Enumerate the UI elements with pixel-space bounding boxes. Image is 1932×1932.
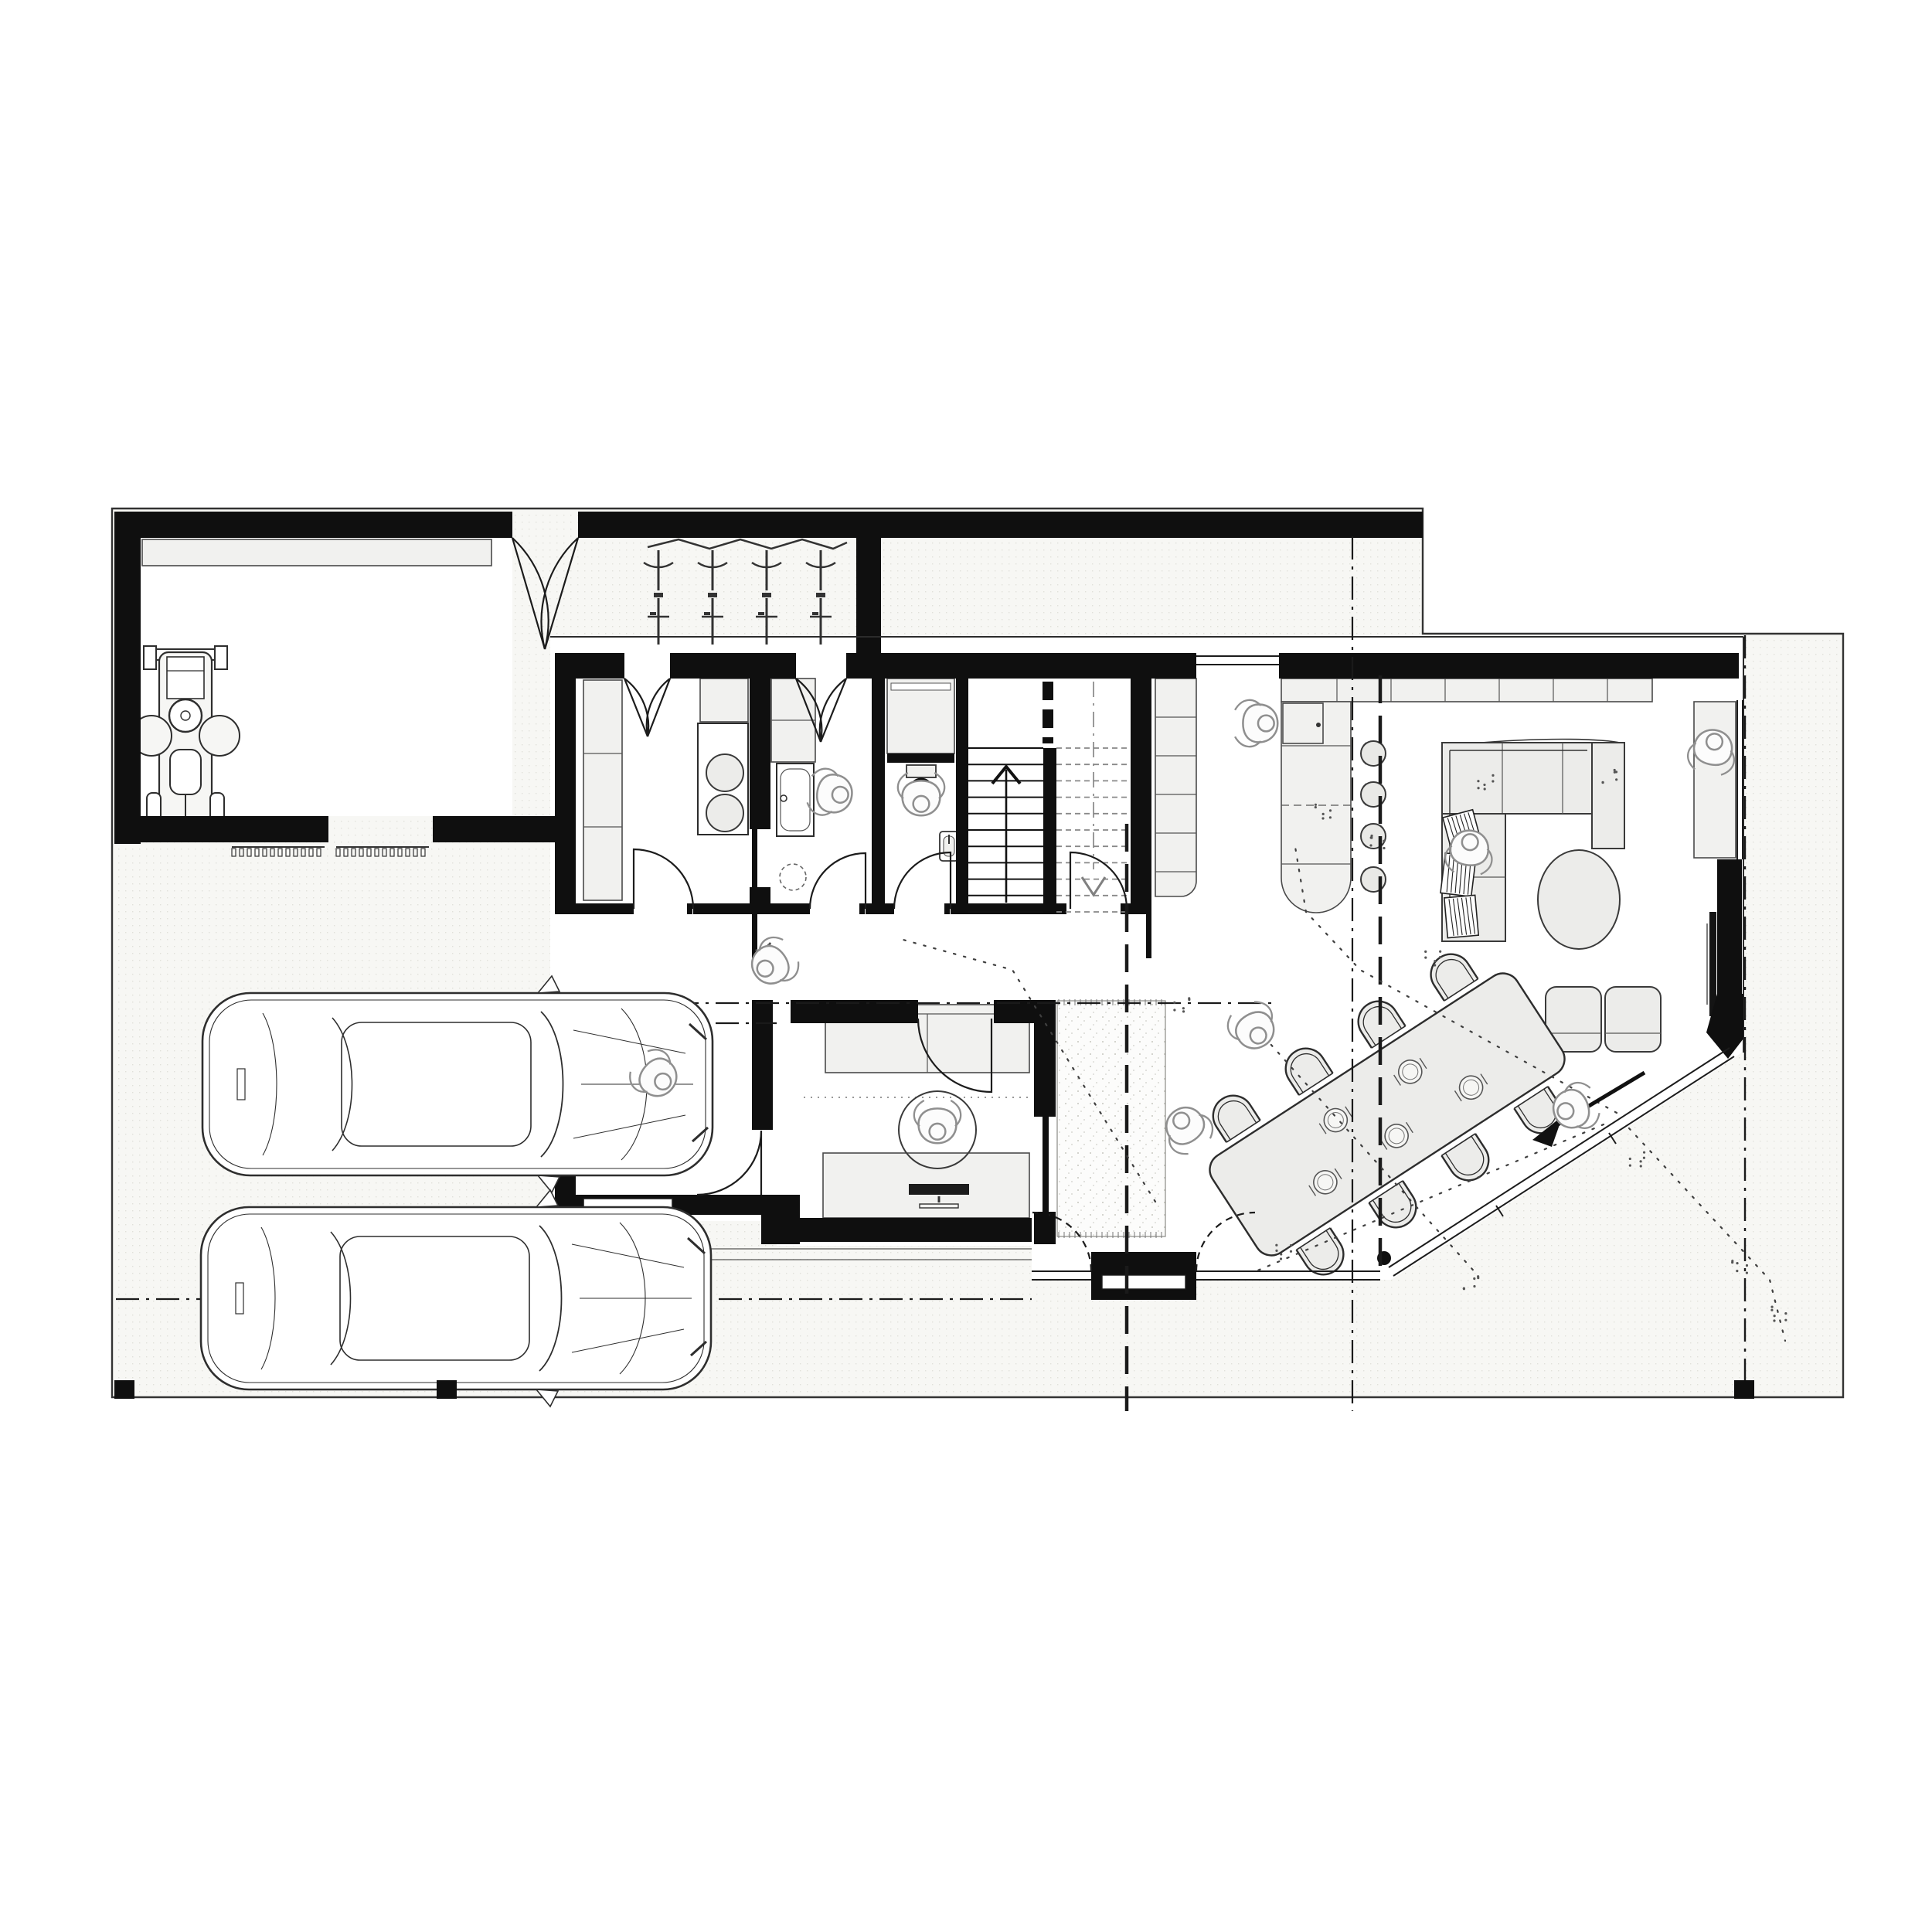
- carport-wall-bottom-a: [114, 816, 328, 842]
- door-jamb: [888, 903, 893, 914]
- laundry-drum-2: [706, 794, 743, 832]
- kitchen-tap: [1316, 723, 1321, 727]
- footprint-dots: [1383, 840, 1385, 842]
- footprint-dots: [1182, 1010, 1185, 1012]
- footprint-dots: [1290, 1244, 1292, 1247]
- site-wall-left: [114, 512, 141, 844]
- wall-top-3: [846, 653, 1196, 679]
- footprint-dots: [1477, 1277, 1479, 1279]
- footprint-dots: [1275, 1250, 1277, 1252]
- footprint-dots: [1477, 787, 1479, 789]
- footprint-dots: [1629, 1158, 1631, 1160]
- footprint-dots: [1784, 1312, 1787, 1315]
- footprint-dots: [1643, 1151, 1645, 1154]
- footprint-dots: [1615, 778, 1617, 781]
- round-rug: [1538, 850, 1620, 949]
- footprint-dots: [1773, 1319, 1775, 1321]
- footprint-dots: [1434, 960, 1436, 962]
- wall-bath-wc: [872, 679, 885, 914]
- site-wall-top-a: [114, 512, 512, 538]
- desk-monitor: [909, 1184, 969, 1195]
- footprint-dots: [1770, 1309, 1773, 1311]
- footprint-dots: [1188, 998, 1190, 1001]
- footprint-dots: [1492, 780, 1494, 782]
- footprint-dots: [1484, 787, 1486, 790]
- wall-top-4: [1279, 653, 1739, 679]
- footprint-dots: [1770, 1306, 1773, 1308]
- court-wall-stub: [856, 538, 881, 653]
- sliding-panel-hall: [1146, 825, 1151, 958]
- footprint-dots: [1629, 1165, 1631, 1167]
- footprint-dots: [1731, 1261, 1733, 1264]
- car-1: [202, 976, 713, 1192]
- footprint-dots: [1315, 806, 1317, 808]
- wall-office-bottom: [777, 1218, 1032, 1242]
- window-bay-floor: [1694, 702, 1736, 858]
- floor-plan-svg: [0, 0, 1932, 1932]
- wc-niche-shelf: [891, 683, 951, 690]
- footprint-dots: [1329, 816, 1332, 818]
- site-wall-top-b: [578, 512, 1423, 538]
- utility-cabinet-row: [583, 680, 622, 900]
- footprint-dots: [1784, 1319, 1787, 1321]
- footprint-dots: [1173, 1002, 1175, 1004]
- footprint-dots: [1434, 964, 1436, 966]
- footprint-dots: [1614, 771, 1616, 774]
- footprint-dots: [1173, 1009, 1175, 1011]
- wall-wc-stair: [956, 679, 968, 914]
- footprint-dots: [1473, 1285, 1475, 1287]
- car-2: [201, 1190, 711, 1406]
- hall-closet: [1155, 679, 1196, 896]
- blanket-stripe: [1444, 895, 1478, 937]
- door-jamb: [687, 903, 692, 914]
- footprint-dots: [1463, 1287, 1465, 1290]
- wc-niche-front: [887, 753, 954, 763]
- laundry-appliance: [700, 679, 748, 722]
- footprint-dots: [1746, 1271, 1748, 1274]
- footprint-dots: [1315, 804, 1317, 806]
- wall-bottom-wc: [951, 903, 968, 914]
- footprint-dots: [1477, 780, 1479, 782]
- footprint-dots: [1601, 781, 1604, 784]
- footprint-dots: [1280, 1253, 1282, 1255]
- footprint-dots: [1473, 1277, 1475, 1280]
- door-jamb: [804, 903, 809, 914]
- footprint-dots: [1439, 951, 1441, 953]
- footprint-dots: [1321, 817, 1324, 819]
- footprint-dots: [1736, 1270, 1738, 1272]
- footprint-dots: [1322, 813, 1325, 815]
- footprint-dots: [1643, 1157, 1645, 1159]
- sliding-panel-office: [1043, 1111, 1049, 1221]
- wall-office-right-a: [1034, 1000, 1056, 1117]
- footprint-dots: [1290, 1250, 1292, 1253]
- wall-stair-mid: [1043, 748, 1056, 914]
- footprint-dots: [1329, 809, 1332, 811]
- footprint-dots: [1424, 957, 1427, 959]
- wc-sink: [940, 832, 958, 861]
- boundary-pier-1: [114, 1380, 134, 1399]
- footprint-dots: [1492, 774, 1494, 777]
- wall-lounge-right: [752, 1000, 773, 1130]
- boundary-pier-2: [437, 1380, 457, 1399]
- wall-utility-bath-a: [750, 679, 770, 829]
- footprint-dots: [1182, 1007, 1185, 1009]
- wall-bottom-utility-a: [555, 903, 634, 914]
- wall-top-2: [670, 653, 796, 679]
- office-rug: [1057, 1001, 1165, 1236]
- footprint-dots: [1774, 1315, 1776, 1317]
- boundary-pier-3: [1734, 1380, 1754, 1399]
- footprint-dots: [1383, 847, 1385, 849]
- laundry-drum-1: [706, 754, 743, 791]
- door-jamb: [859, 903, 865, 914]
- floor-plan-canvas: [0, 0, 1932, 1932]
- entrance-pier-inset: [1102, 1275, 1185, 1289]
- wall-left-upper: [555, 653, 576, 914]
- carport-wall-bottom-b: [433, 816, 555, 842]
- footprint-dots: [1369, 844, 1372, 846]
- door-jamb: [944, 903, 950, 914]
- footprint-dots: [1640, 1165, 1642, 1167]
- footprint-dots: [1736, 1262, 1738, 1264]
- footprint-dots: [1746, 1264, 1748, 1267]
- carport-shelf: [142, 539, 492, 566]
- wall-tv: [1717, 859, 1742, 1006]
- footprint-dots: [1614, 769, 1616, 771]
- footprint-dots: [1280, 1257, 1282, 1260]
- footprint-dots: [1639, 1160, 1641, 1162]
- wall-bottom-utility-b: [693, 903, 770, 914]
- footprint-dots: [1483, 784, 1485, 786]
- sliding-panel-utility: [752, 825, 757, 958]
- footprint-dots: [1370, 835, 1372, 837]
- footprint-dots: [1275, 1244, 1277, 1247]
- door-jamb: [628, 903, 633, 914]
- footprint-dots: [1439, 956, 1441, 958]
- footprint-dots: [1424, 951, 1427, 953]
- footprint-dots: [769, 943, 771, 945]
